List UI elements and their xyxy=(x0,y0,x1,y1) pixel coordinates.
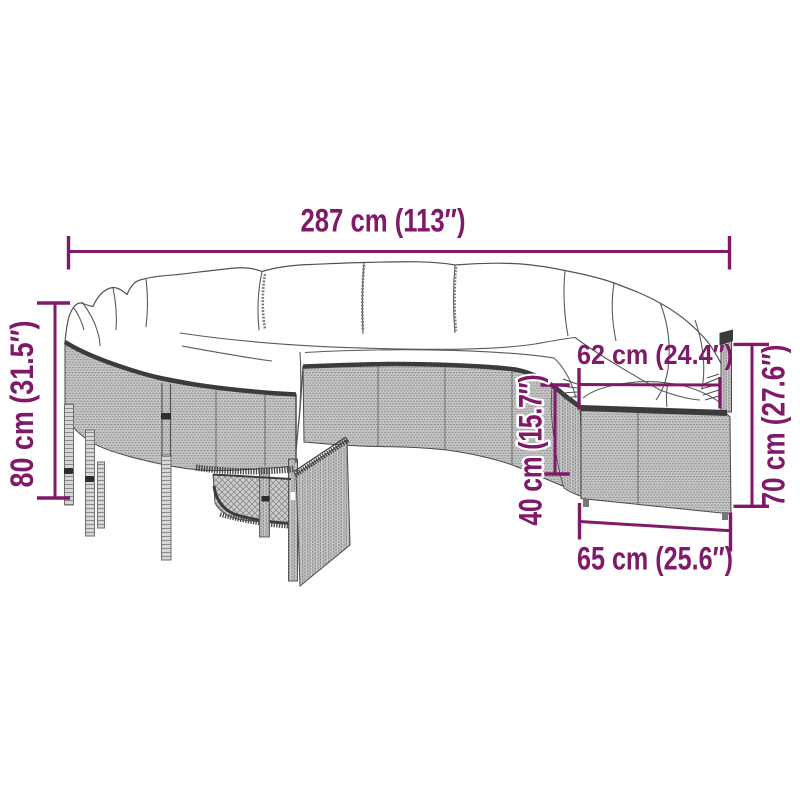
svg-text:62 cm (24.4″): 62 cm (24.4″) xyxy=(577,339,733,370)
svg-text:70 cm (27.6″): 70 cm (27.6″) xyxy=(756,345,792,507)
svg-text:65 cm (25.6″): 65 cm (25.6″) xyxy=(577,541,733,577)
svg-text:40 cm (15.7″): 40 cm (15.7″) xyxy=(513,375,549,526)
svg-text:287 cm (113″): 287 cm (113″) xyxy=(301,203,466,239)
svg-text:80 cm (31.5″): 80 cm (31.5″) xyxy=(4,321,40,488)
